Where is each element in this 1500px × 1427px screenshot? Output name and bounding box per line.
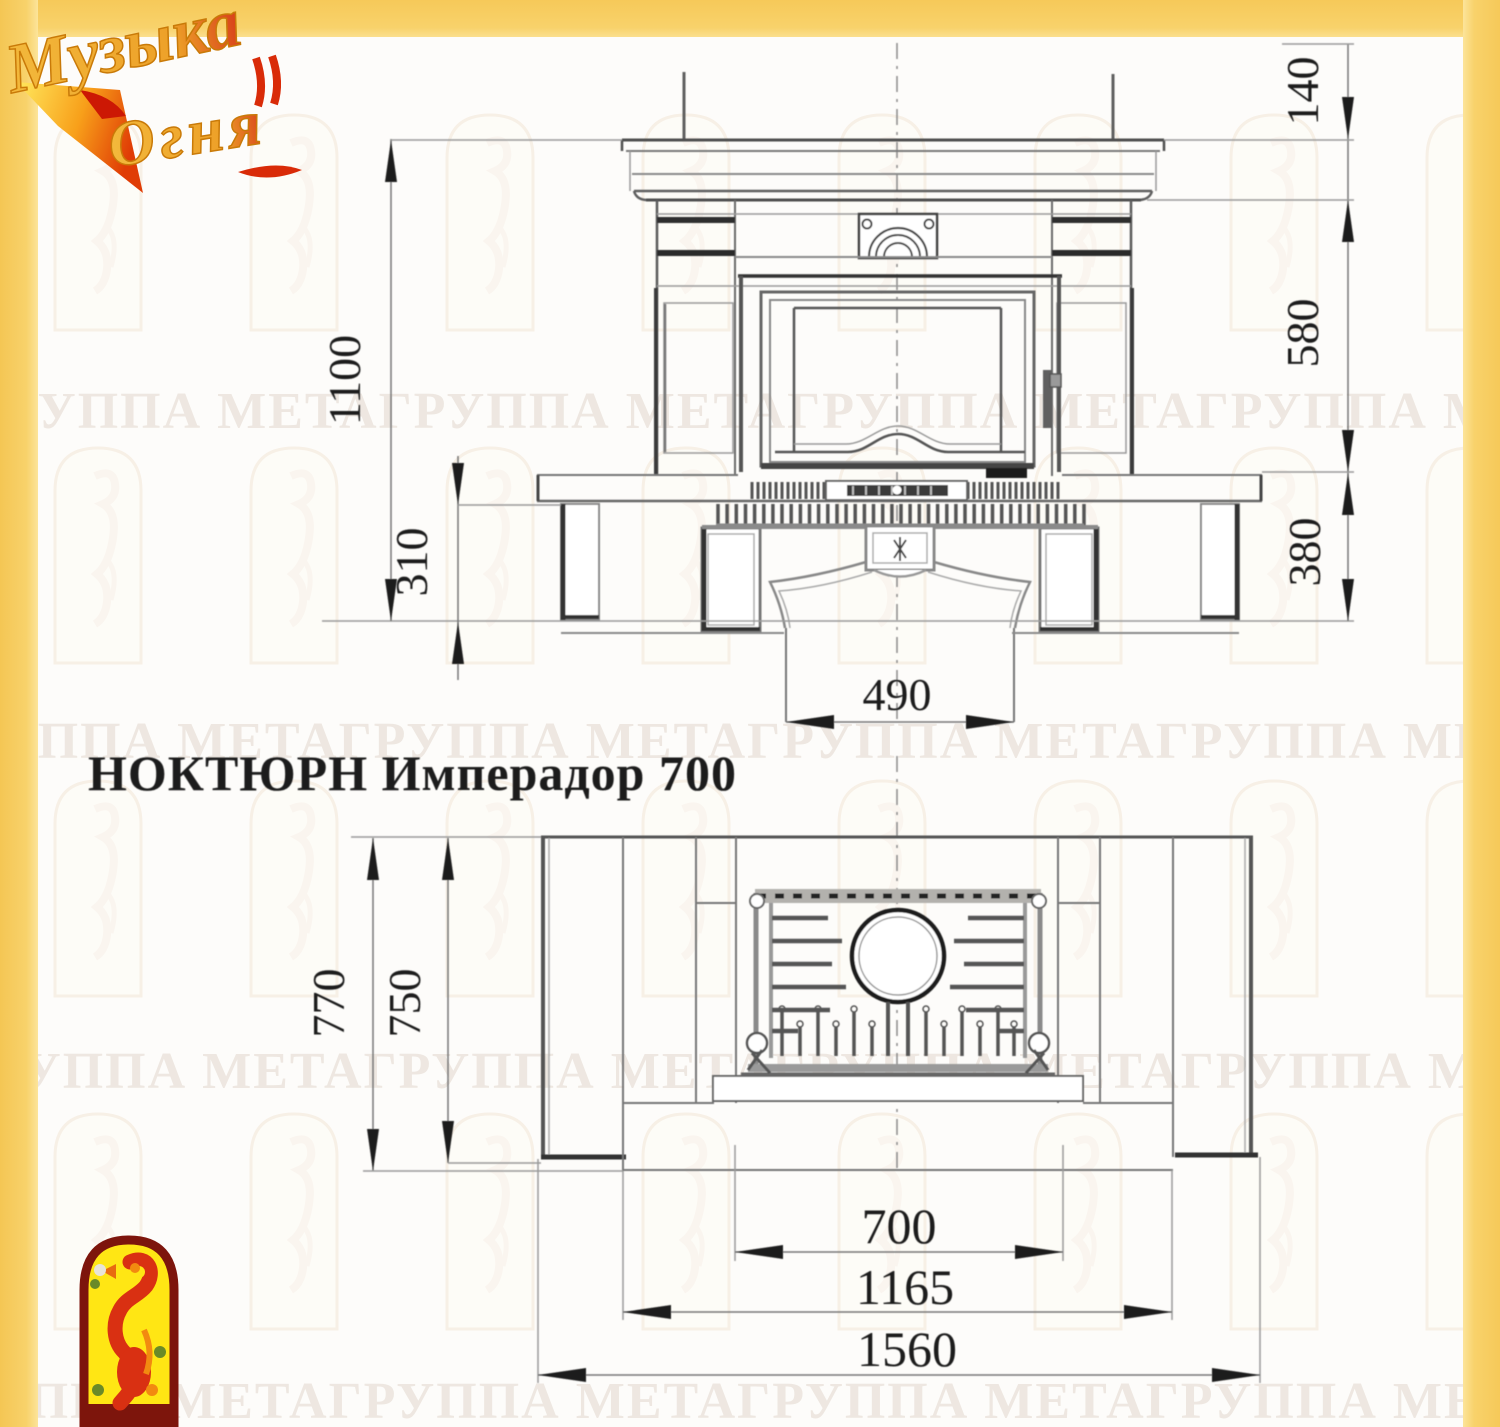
svg-text:1560: 1560 [857,1321,957,1377]
svg-text:770: 770 [303,969,354,1038]
svg-text:310: 310 [386,528,437,597]
svg-text:490: 490 [863,669,932,720]
svg-text:1100: 1100 [319,335,370,425]
svg-text:1165: 1165 [856,1259,954,1315]
svg-text:НОКТЮРН Имперадор 700: НОКТЮРН Имперадор 700 [88,745,737,801]
svg-text:ГРУППА МЕТАГРУППА МЕТАГРУППА М: ГРУППА МЕТАГРУППА МЕТАГРУППА МЕТАГРУППА … [0,383,1500,440]
svg-text:380: 380 [1279,518,1330,587]
svg-text:750: 750 [379,969,430,1038]
svg-text:140: 140 [1277,57,1328,126]
svg-text:700: 700 [862,1198,937,1254]
svg-text:ГРУППА МЕТАГРУППА МЕТАГРУППА М: ГРУППА МЕТАГРУППА МЕТАГРУППА МЕТАГРУППА … [0,1373,1500,1427]
svg-text:580: 580 [1277,299,1328,368]
